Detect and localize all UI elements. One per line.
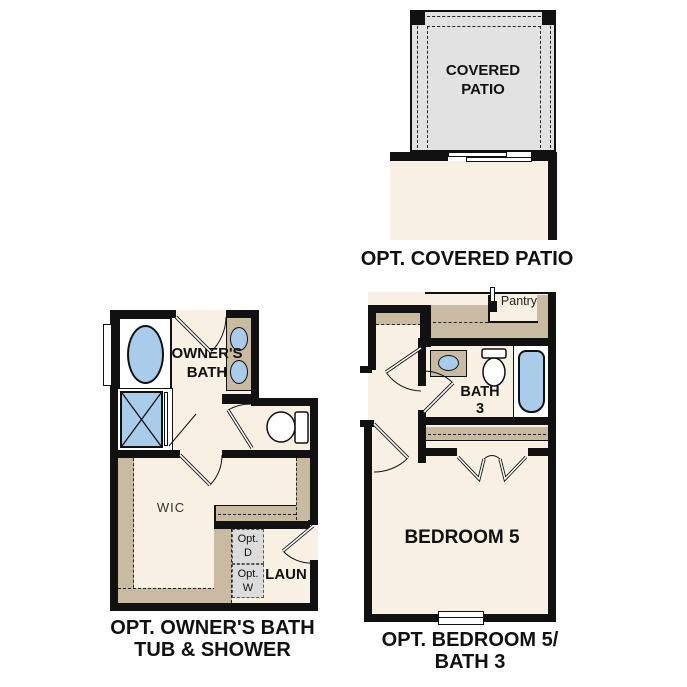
owners-bath-label: OWNER'S BATH [166, 345, 248, 383]
wall-closet1-left [368, 305, 376, 370]
bedroom-window [438, 611, 484, 625]
wall-closet1-top [368, 305, 425, 313]
pantry-door-stub [489, 301, 497, 312]
wall-bath-left [418, 338, 426, 386]
laun-label: LAUN [262, 566, 310, 583]
caption-owners-bath-line2: TUB & SHOWER [75, 639, 350, 661]
bathtub [127, 325, 164, 384]
pantry-wall-h [488, 321, 538, 323]
hall-shelf-band-dash [433, 322, 488, 323]
hall-closet-shelf [376, 313, 421, 325]
stub-left-upper [360, 366, 372, 373]
wic-label: WIC [148, 500, 194, 515]
wall-laun-top [214, 520, 310, 529]
patio-post-right [542, 12, 555, 25]
wall-right-lower-a [310, 450, 318, 525]
caption-bedroom5-line1: OPT. BEDROOM 5/ [355, 629, 585, 651]
wall-bottom [110, 603, 318, 611]
opt-washer-label: Opt. W [233, 567, 263, 596]
hall-shelf-band [430, 305, 490, 340]
wall-mid-right [222, 450, 318, 458]
pantry-door-panel [490, 287, 495, 302]
caption-bedroom5: OPT. BEDROOM 5/ BATH 3 [355, 629, 585, 674]
caption-owners-bath: OPT. OWNER'S BATH TUB & SHOWER [75, 617, 350, 662]
wic-shelf-left [118, 458, 134, 603]
opt-dryer-box: Opt. D [232, 529, 264, 564]
wall-closet2-left [418, 417, 426, 463]
laun-side-strip [214, 529, 232, 603]
wic-shelf-bottom [118, 588, 216, 603]
wall-bath-top [425, 338, 556, 346]
bathtub-bath3 [518, 350, 545, 413]
wall-bedroom-left [364, 420, 372, 622]
sliding-door-panel-2 [466, 157, 532, 162]
wall-closet2-bottom-right [528, 448, 556, 456]
bedroom-closet-shelf-dash [428, 434, 546, 435]
bedroom-closet-shelf [426, 427, 548, 441]
caption-bedroom5-line2: BATH 3 [355, 651, 585, 673]
caption-owners-bath-line1: OPT. OWNER'S BATH [75, 617, 350, 639]
wic-shelf-mid-dash [218, 514, 306, 515]
patio-house-floor [390, 161, 548, 240]
bedroom5-label: BEDROOM 5 [392, 527, 532, 549]
patio-post-left [412, 12, 425, 25]
covered-patio-label: COVERED PATIO [423, 62, 543, 100]
opt-washer-box: Opt. W [232, 564, 264, 598]
wall-closet2-bottom-left [418, 448, 457, 456]
outside-notch [259, 305, 319, 398]
wall-wc-right [310, 398, 318, 458]
wall-wc-top [251, 398, 318, 406]
shelf-right [296, 458, 310, 520]
pantry-label: Pantry [498, 294, 540, 308]
caption-covered-patio: OPT. COVERED PATIO [357, 248, 577, 270]
opt-dryer-label: Opt. D [233, 532, 263, 561]
shower-pan [120, 391, 163, 448]
bedroom-window-mullion [439, 617, 483, 618]
window-left [103, 324, 112, 386]
sink-bath3 [438, 355, 459, 371]
wall-mid-left [110, 450, 180, 458]
wic-shelf-mid [216, 505, 308, 521]
patio-house-wall-right [548, 152, 557, 240]
shower-glass-door [164, 392, 168, 446]
wall-right-upper [251, 310, 259, 405]
bath3-label: BATH 3 [458, 384, 502, 419]
floor-plan-canvas: COVERED PATIO OPT. COVERED PATIO [0, 0, 687, 687]
patio-house-wall-top-left [390, 152, 448, 161]
